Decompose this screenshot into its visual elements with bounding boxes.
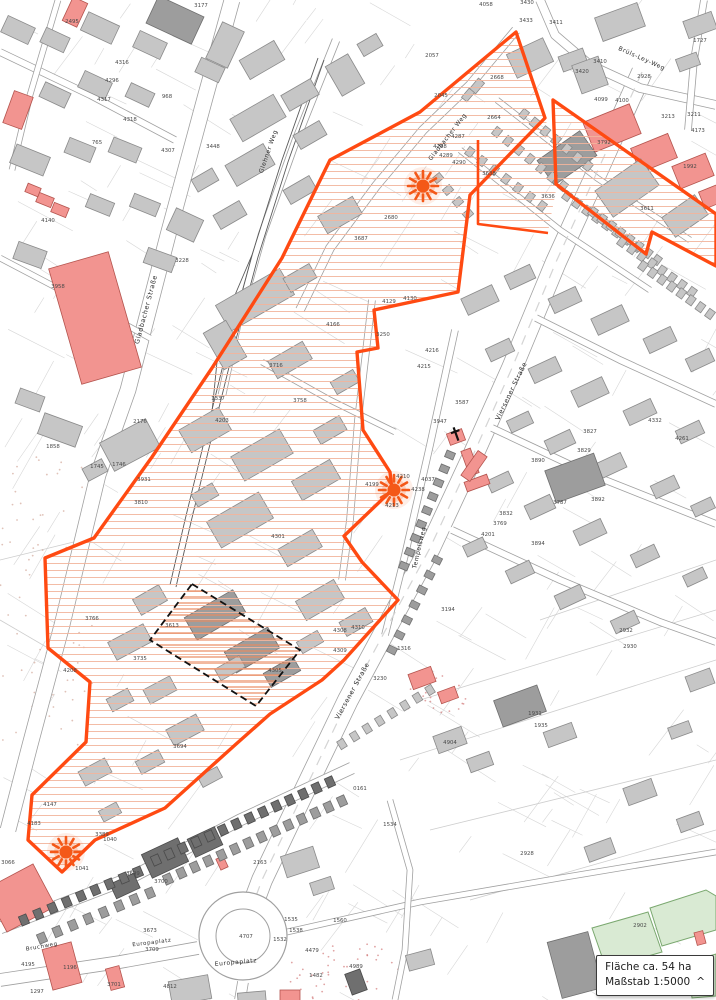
parcel-number: 3958 [51,284,65,290]
building [239,40,285,79]
vegetation-dot [424,700,426,702]
parcel-number: 3709 [145,947,159,953]
parcel-line [201,263,216,273]
parcel-number: 3787 [553,500,567,506]
building [213,201,247,230]
parcel-number: 1337 [211,396,225,402]
parcel-number: 4199 [365,482,379,488]
vegetation-dot [296,977,298,979]
parcel-line [200,250,224,262]
parcel-line [333,112,363,126]
parcel-number: 4316 [115,60,129,66]
building [623,778,657,805]
vegetation-dot [332,945,334,947]
building [310,807,321,819]
area-label: Fläche ca. 54 ha [605,960,691,975]
parcel-number: 4129 [382,299,396,305]
parcel-line [498,802,546,826]
parcel-line [8,329,65,358]
parcel-number: 4203 [215,418,229,424]
parcel-line [503,854,553,879]
vegetation-dot [37,544,39,546]
parcel-number: 3430 [520,0,534,6]
vegetation-dot [40,514,42,516]
building [49,252,142,384]
vegetation-dot [433,707,435,709]
parcel-number: 4100 [615,98,629,104]
parcel-line [486,614,527,638]
parcel-number: 4213 [385,503,399,509]
parcel-number: 4037 [421,477,435,483]
building [547,932,603,999]
parcel-line [430,917,442,936]
parcel-line [368,690,402,711]
vegetation-dot [327,971,329,973]
building [336,795,347,807]
building [422,506,433,516]
parcel-number: 4318 [123,117,137,123]
parcel-line [228,232,239,250]
building [685,295,696,306]
building [672,153,714,189]
parcel-number: 4317 [97,97,111,103]
parcel-line [305,19,323,43]
vegetation-dot [81,467,83,469]
vegetation-dot [59,469,61,471]
building [650,475,679,499]
parcel-line [256,0,291,22]
parcel-number: 3613 [165,623,179,629]
parcel-line [542,809,552,822]
building [374,715,385,726]
map-canvas[interactable]: 2495317740583430343334111727341029283211… [0,0,716,1000]
parcel-number: 3194 [441,607,455,613]
building [362,723,373,734]
parcel-line [144,352,192,375]
parcel-number: 4210 [396,474,410,480]
parcel-line [84,414,98,434]
parcel-line [81,181,97,191]
vegetation-dot [42,549,44,551]
parcel-number: 4140 [41,218,55,224]
parcel-number: 4707 [239,934,253,940]
parcel-line [547,607,561,629]
north-indicator: ^ [696,975,705,990]
parcel-number: 4238 [411,487,425,493]
parcel-number: 3228 [175,258,189,264]
parcel-number: 4812 [163,984,177,990]
parcel-number: 1935 [534,723,548,729]
parcel-number: 4195 [21,962,35,968]
building [323,801,334,813]
building [129,193,160,216]
building [494,685,547,727]
parcel-number: 1538 [289,928,303,934]
parcel-number: 4261 [675,436,689,442]
parcel-line [459,836,471,852]
parcel-number: 2902 [633,923,647,929]
parcel-number: 1041 [75,866,89,872]
parcel-line [172,325,209,347]
parcel-number: 3701 [107,982,121,988]
parcel-number: 3448 [206,144,220,150]
parcel-number: 4216 [425,348,439,354]
parcel-line [380,65,394,85]
parcel-number: 3673 [143,928,157,934]
parcel-line [524,776,558,822]
parcel-line [690,765,714,805]
parcel-line [13,436,43,489]
vegetation-dot [333,950,335,952]
parcel-number: 4904 [443,740,457,746]
parcel-number: 3066 [1,860,15,866]
vegetation-dot [346,966,348,968]
parcel-number: 1745 [90,464,104,470]
parcel-number: 2495 [65,19,79,25]
vegetation-dot [429,701,431,703]
building [349,731,360,742]
building [405,949,434,971]
vegetation-dot [0,584,1,586]
parcel-number: 3931 [137,477,151,483]
parcel-number: 3687 [354,236,368,242]
parcel-number: 1297 [30,989,44,995]
vegetation-dot [72,699,74,701]
vegetation-dot [381,948,383,950]
vegetation-dot [39,649,41,651]
building [638,260,649,271]
vegetation-dot [38,459,40,461]
building [676,811,703,832]
parcel-line [159,403,169,422]
parcel-number: 4310 [351,625,365,631]
vegetation-dot [375,959,377,961]
vegetation-dot [72,679,74,681]
building [1,16,36,45]
parcel-number: 3894 [531,541,545,547]
parcel-number: 3716 [269,363,283,369]
parcel-line [370,3,411,26]
parcel-number: 3250 [376,332,390,338]
vegetation-dot [81,486,83,488]
parcel-line [405,44,414,58]
parcel-number: 1532 [273,937,287,943]
sun-marker [404,167,442,205]
building [345,969,368,995]
parcel-number: 3611 [640,206,654,212]
parcel-number: 4208 [63,668,77,674]
vegetation-dot [48,715,50,717]
building [176,867,187,879]
building [528,356,562,383]
parcel-number: 2664 [487,115,501,121]
building [412,692,423,703]
vegetation-dot [29,574,31,576]
building [83,913,94,925]
parcel-line [609,892,625,919]
building [524,494,556,519]
parcel-number: 4301 [271,534,285,540]
building [85,194,114,217]
parcel-line [345,820,377,873]
parcel-number: 4130 [403,296,417,302]
parcel-number: 1858 [46,444,60,450]
parcel-number: 4296 [105,78,119,84]
vegetation-dot [35,456,37,458]
building [133,31,168,60]
parcel-number: 3700 [154,879,168,885]
parcel-number: 4989 [349,964,363,970]
building [67,919,78,931]
vegetation-dot [33,692,35,694]
parcel-number: 2045 [434,93,448,99]
vegetation-dot [357,958,359,960]
parcel-number: 3411 [549,20,563,26]
building [584,838,616,863]
parcel-line [437,621,472,640]
parcel-number: 4308 [333,628,347,634]
parcel-line [104,844,133,859]
parcel-line [95,48,104,64]
parcel-line [460,607,482,637]
parcel-number: 3766 [85,616,99,622]
field-line [0,620,48,648]
vegetation-dot [31,672,33,674]
parcel-number: 4309 [333,648,347,654]
parcel-number: 3213 [661,114,675,120]
building [387,707,398,718]
vegetation-dot [291,962,293,964]
parcel-number: 3230 [373,676,387,682]
parcel-number: 2930 [623,644,637,650]
parcel-line [522,397,540,408]
vegetation-dot [12,473,14,475]
vegetation-dot [333,959,335,961]
vegetation-dot [84,690,86,692]
vegetation-dot [32,519,34,521]
parcel-line [333,815,362,828]
vegetation-dot [435,677,437,679]
parcel-number: 0161 [353,786,367,792]
parcel-number: 1196 [63,965,77,971]
building [144,887,155,899]
vegetation-dot [2,527,4,529]
parcel-number: 2928 [637,74,651,80]
parcel-line [105,485,118,493]
vegetation-dot [60,461,62,463]
parcel-number: 3638 [482,171,496,177]
vegetation-dot [32,547,34,549]
vegetation-dot [28,559,30,561]
vegetation-dot [376,988,378,990]
parcel-number: 4289 [439,153,453,159]
parcel-line [120,4,130,19]
parcel-number: 4058 [479,2,493,8]
parcel-line [36,361,54,394]
parcel-number: 3947 [433,419,447,425]
vegetation-dot [19,596,21,598]
building [427,492,438,502]
vegetation-dot [458,708,460,710]
vegetation-dot [448,710,450,712]
vegetation-dot [321,991,323,993]
parcel-line [293,0,308,5]
building [125,83,155,108]
parcel-number: 765 [92,140,102,146]
parcel-line [542,774,575,793]
parcel-line [526,608,555,660]
parcel-number: 3892 [591,497,605,503]
building [506,411,533,433]
parcel-number: 4099 [594,97,608,103]
parcel-number: 4332 [648,418,662,424]
parcel-line [311,697,327,719]
road [390,800,410,1000]
parcel-line [523,765,549,778]
parcel-line [494,499,506,521]
building [461,285,499,316]
vegetation-dot [12,504,14,506]
building [437,686,458,703]
vegetation-dot [16,466,18,468]
building [439,464,450,474]
parcel-line [156,69,196,90]
vegetation-dot [63,510,65,512]
building [486,471,513,493]
parcel-number: 2668 [490,75,504,81]
parcel-line [143,911,198,939]
building [52,925,63,937]
vegetation-dot [2,675,4,677]
vegetation-dot [425,692,427,694]
parcel-line [306,8,315,20]
vegetation-dot [323,983,325,985]
city-map: 2495317740583430343334111727341029283211… [0,0,716,1000]
building [643,326,677,353]
vegetation-dot [7,614,9,616]
parcel-line [340,992,389,1000]
parcel-number: 2163 [253,860,267,866]
parcel-line [447,945,467,974]
vegetation-dot [57,473,59,475]
building [595,3,646,42]
building [108,137,142,163]
vegetation-dot [377,954,379,956]
vegetation-dot [52,694,54,696]
parcel-line [606,799,620,823]
vegetation-dot [71,720,73,722]
parcel-line [596,650,612,675]
vegetation-dot [9,541,11,543]
parcel-line [581,266,598,289]
building [690,497,715,517]
vegetation-dot [2,739,4,741]
building [400,700,411,711]
vegetation-dot [65,691,67,693]
building [229,843,240,855]
vegetation-dot [42,514,44,516]
parcel-number: 968 [162,94,173,100]
parcel-number: 4166 [326,322,340,328]
green-area [650,890,716,946]
vegetation-dot [16,633,18,635]
building [202,855,213,867]
building [504,264,536,289]
road [287,852,716,932]
parcel-number: 3890 [531,458,545,464]
vegetation-dot [302,968,304,970]
building [3,91,33,130]
parcel-number: 3810 [134,500,148,506]
parcel-number: 3420 [575,69,589,75]
parcel-number: 3827 [583,429,597,435]
parcel-number: 4307 [161,148,175,154]
parcel-number: 3636 [541,194,555,200]
parcel-number: 3735 [133,656,147,662]
parcel-number: 2176 [133,419,147,425]
vegetation-dot [67,679,69,681]
vegetation-dot [359,948,361,950]
parcel-line [132,157,176,178]
parcel-number: 4173 [691,128,705,134]
parcel-number: 3694 [173,744,187,750]
parcel-number: 1992 [683,164,697,170]
vegetation-dot [25,615,27,617]
parcel-number: 2680 [384,215,398,221]
building [543,722,577,747]
parcel-line [99,917,112,933]
building [114,900,125,912]
parcel-number: 4479 [305,948,319,954]
vegetation-dot [422,695,424,697]
building [10,144,51,176]
building [685,668,715,692]
parcel-number: 3699 [126,871,140,877]
building [129,893,140,905]
building [15,388,45,412]
vegetation-dot [322,953,324,955]
building [668,721,693,740]
parcel-line [458,635,505,660]
parcel-line [23,221,37,243]
parcel-number: 4290 [452,160,466,166]
vegetation-dot [53,706,55,708]
building [666,281,677,292]
parcel-line [612,370,626,396]
parcel-number: 3792 [597,140,611,146]
parcel-number: 3832 [499,511,513,517]
parcel-number: 2057 [425,53,439,59]
vegetation-dot [430,697,432,699]
parcel-number: 3769 [493,521,507,527]
parcel-number: 3758 [293,398,307,404]
building [189,861,200,873]
building [544,429,576,454]
vegetation-dot [20,503,22,505]
building [25,183,41,197]
parcel-number: 2928 [520,851,534,857]
vegetation-dot [77,744,79,746]
parcel-number: 4183 [27,821,41,827]
vegetation-dot [442,675,444,677]
building [695,301,706,312]
building [683,11,716,38]
vegetation-dot [14,491,16,493]
parcel-line [86,122,118,138]
parcel-number: 1482 [309,973,323,979]
parcel-line [14,526,40,564]
parcel-line [591,551,631,576]
